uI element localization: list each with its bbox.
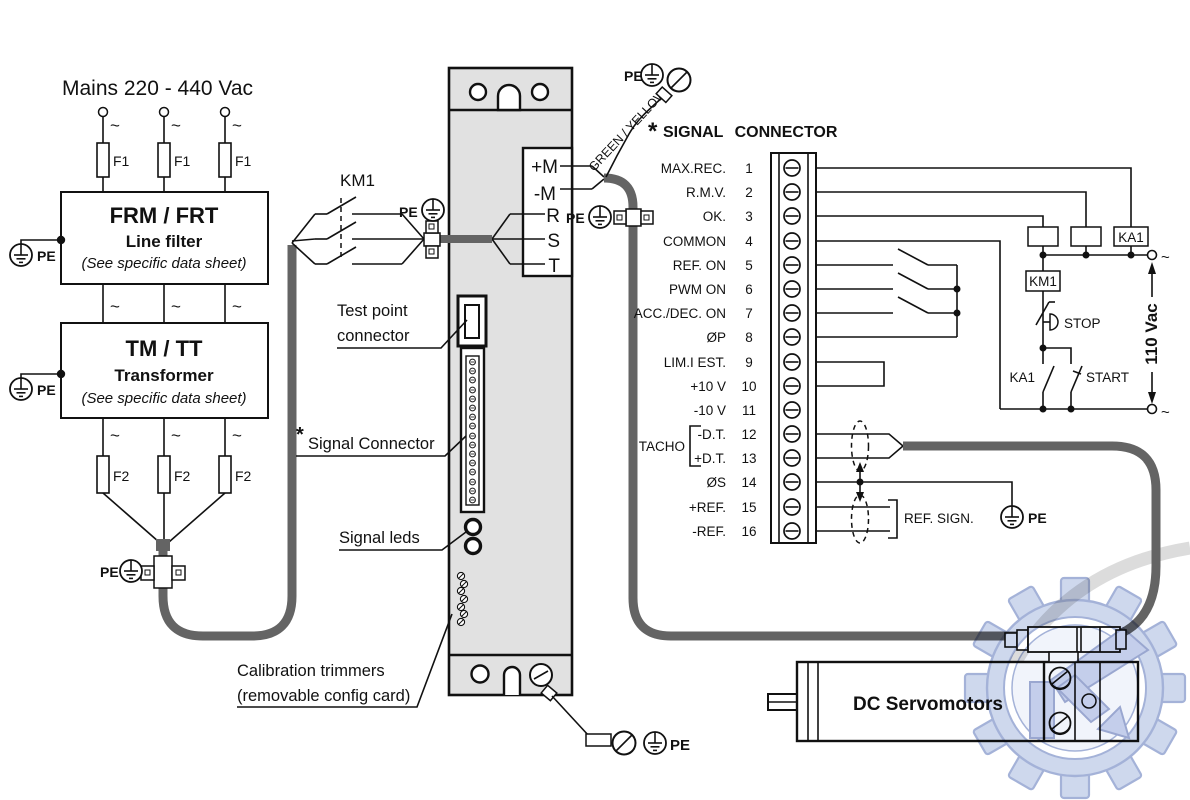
svg-text:8: 8 — [745, 330, 753, 345]
supply-terminal-bottom — [1148, 405, 1157, 414]
svg-text:12: 12 — [741, 427, 756, 442]
cable-clamp-pe-armature: PE — [566, 206, 653, 228]
svg-text:ØS: ØS — [706, 475, 726, 490]
filter-to-transformer-lines: ~ ~ ~ — [103, 284, 242, 323]
ref-sign-bracket: REF. SIGN. — [888, 500, 974, 538]
control-circuit: KA1 ~ KM1 STOP KA1 — [1000, 227, 1170, 421]
pe-label: PE — [624, 68, 643, 84]
svg-text:11: 11 — [742, 403, 756, 418]
terminal-r: R — [546, 206, 560, 227]
ac-symbol: ~ — [171, 116, 181, 135]
line-filter-pe: PE — [10, 236, 65, 266]
pe-label: PE — [1028, 510, 1047, 526]
tacho-bracket: TACHO — [639, 426, 701, 466]
drive-bottom-pe: PE — [552, 696, 690, 755]
wire-plus-dt — [816, 446, 903, 458]
mounting-slot — [504, 667, 520, 695]
svg-text:1: 1 — [745, 161, 753, 176]
svg-text:Signal leds: Signal leds — [339, 529, 420, 547]
svg-text:MAX.REC.: MAX.REC. — [661, 161, 726, 176]
svg-text:(removable config card): (removable config card) — [237, 687, 410, 705]
svg-text:R.M.V.: R.M.V. — [686, 185, 726, 200]
pe-label: PE — [100, 564, 119, 580]
transformer-subtitle: Transformer — [114, 366, 214, 385]
terminal-minus-m: -M — [534, 184, 556, 205]
ac-symbol: ~ — [110, 116, 120, 135]
svg-text:-10 V: -10 V — [694, 403, 726, 418]
transformer-pe: PE — [10, 370, 65, 400]
secondary-section: ~ ~ ~ F2 F2 F2 — [97, 418, 252, 551]
callout-signal-connector: * Signal Connector — [296, 424, 466, 456]
drive-callouts: Test point connector * Signal Connector … — [237, 302, 467, 707]
fuse-f1-label: F1 — [174, 153, 191, 169]
svg-text:ØP: ØP — [706, 330, 726, 345]
start-button: START — [1043, 348, 1129, 409]
cable-clamp-pe-left: PE — [100, 556, 185, 588]
wire-pwm-on — [816, 273, 957, 289]
svg-text:Calibration trimmers: Calibration trimmers — [237, 662, 385, 680]
svg-text:13: 13 — [741, 451, 756, 466]
svg-text:STOP: STOP — [1064, 316, 1101, 331]
svg-text:Signal Connector: Signal Connector — [308, 435, 435, 453]
svg-text:2: 2 — [745, 185, 753, 200]
svg-text:PWM ON: PWM ON — [669, 282, 726, 297]
fuse-f2-label: F2 — [113, 468, 130, 484]
svg-text:KM1: KM1 — [1029, 274, 1057, 289]
fuse-f2-label: F2 — [235, 468, 252, 484]
supply-voltage-dimension: 110 Vac — [1142, 262, 1161, 404]
wire-minus-dt — [816, 434, 903, 446]
wire-acc-dec-on — [816, 297, 957, 313]
svg-text:COMMON: COMMON — [663, 234, 726, 249]
wire-ref-on — [816, 249, 957, 265]
terminal-t: T — [548, 256, 560, 277]
svg-text:OK.: OK. — [703, 209, 726, 224]
svg-text:KA1: KA1 — [1118, 230, 1144, 245]
ac-symbol: ~ — [232, 116, 242, 135]
svg-text:16: 16 — [741, 524, 756, 539]
ac-symbol: ~ — [171, 297, 181, 316]
relay-coil-ka1: KA1 — [1114, 227, 1148, 246]
pe-label: PE — [37, 382, 56, 398]
svg-text:ACC./DEC. ON: ACC./DEC. ON — [634, 306, 726, 321]
stop-button: STOP — [1036, 291, 1101, 348]
pe-label: PE — [399, 204, 418, 220]
keyhole-slot — [498, 85, 520, 110]
svg-text:Test point: Test point — [337, 302, 408, 320]
ac-symbol: ~ — [232, 297, 242, 316]
wire-ok — [816, 216, 1043, 227]
terminal-plus-m: +M — [531, 157, 558, 178]
signal-connector-section: * SIGNAL CONNECTOR MAX.REC.1 R.M.V.2 OK.… — [634, 118, 838, 543]
wiring-diagram-page: Mains 220 - 440 Vac ~ ~ ~ F1 F1 F1 FRM / — [0, 0, 1190, 800]
svg-text:6: 6 — [745, 282, 753, 297]
km1-pole-1 — [315, 197, 402, 214]
mounting-hole — [532, 84, 548, 100]
svg-text:REF. ON: REF. ON — [673, 258, 726, 273]
jumper-limi-10v — [816, 362, 884, 386]
svg-text:9: 9 — [745, 355, 753, 370]
signal-connector-heading: SIGNAL CONNECTOR — [663, 124, 838, 141]
callout-signal-leds: Signal leds — [339, 529, 466, 550]
km1-contactor-label: KM1 — [340, 171, 375, 190]
transformer-title: TM / TT — [126, 336, 204, 361]
callout-test-point: Test point connector — [337, 302, 467, 348]
svg-text:START: START — [1086, 370, 1129, 385]
relay-coil-1 — [1028, 227, 1058, 246]
km1-pole-2 — [315, 222, 402, 239]
svg-text:-D.T.: -D.T. — [698, 427, 727, 442]
svg-text:4: 4 — [745, 234, 753, 249]
svg-text:connector: connector — [337, 327, 410, 345]
svg-text:15: 15 — [741, 500, 756, 515]
wire-max-rec — [816, 168, 1131, 227]
signal-terminal-block — [771, 153, 816, 543]
svg-text:+REF.: +REF. — [689, 500, 726, 515]
svg-text:3: 3 — [745, 209, 753, 224]
watermark-gear-logo — [965, 578, 1185, 798]
ref-sign-label: REF. SIGN. — [904, 511, 974, 526]
ac-symbol: ~ — [171, 426, 181, 445]
servo-drive-wiring-diagram: Mains 220 - 440 Vac ~ ~ ~ F1 F1 F1 FRM / — [0, 0, 1190, 800]
mains-section: Mains 220 - 440 Vac ~ ~ ~ F1 F1 F1 — [62, 77, 253, 192]
heading-asterisk: * — [648, 118, 658, 145]
signal-wiring: PE REF. SIGN. — [816, 168, 1156, 635]
fuse-f1-label: F1 — [235, 153, 252, 169]
ac-symbol: ~ — [1161, 249, 1170, 266]
wire-rmv — [816, 192, 1086, 227]
callout-calibration: Calibration trimmers (removable config c… — [237, 614, 452, 707]
km1-pole-3 — [315, 247, 402, 264]
drive-signal-connector-strip — [461, 348, 484, 512]
terminal-s: S — [547, 231, 560, 252]
svg-text:14: 14 — [741, 475, 757, 490]
transformer-box: TM / TT Transformer (See specific data s… — [10, 323, 268, 418]
svg-text:-REF.: -REF. — [692, 524, 726, 539]
pe-label: PE — [566, 210, 585, 226]
km1-coil: KM1 — [1026, 255, 1060, 291]
tacho-label: TACHO — [639, 439, 685, 454]
relay-coil-2 — [1071, 227, 1101, 246]
mounting-hole — [472, 666, 489, 683]
supply-voltage-label: 110 Vac — [1142, 303, 1161, 364]
svg-text:KA1: KA1 — [1009, 370, 1035, 385]
ka1-contact: KA1 — [1009, 348, 1054, 409]
line-filter-subtitle: Line filter — [126, 232, 203, 251]
wire-common — [816, 241, 1000, 409]
line-filter-title: FRM / FRT — [110, 203, 219, 228]
fuse-f2-label: F2 — [174, 468, 191, 484]
cable-clamp-pe-mid: PE — [399, 199, 444, 258]
test-point-connector — [458, 296, 486, 346]
pe-label: PE — [670, 737, 690, 754]
drive-module: +M -M R S T — [449, 68, 572, 701]
svg-text:+D.T.: +D.T. — [694, 451, 726, 466]
transformer-note: (See specific data sheet) — [81, 390, 246, 407]
mains-title: Mains 220 - 440 Vac — [62, 77, 253, 100]
pe-label: PE — [37, 248, 56, 264]
supply-terminal-top — [1148, 251, 1157, 260]
svg-text:LIM.I EST.: LIM.I EST. — [664, 355, 726, 370]
line-filter-note: (See specific data sheet) — [81, 255, 246, 272]
svg-text:10: 10 — [741, 379, 756, 394]
line-filter-box: FRM / FRT Line filter (See specific data… — [10, 192, 268, 284]
fuses-f1: F1 F1 F1 — [97, 143, 252, 177]
svg-text:+10 V: +10 V — [690, 379, 726, 394]
svg-text:5: 5 — [745, 258, 753, 273]
svg-text:*: * — [296, 424, 304, 446]
ac-symbol: ~ — [1161, 404, 1170, 421]
svg-text:7: 7 — [745, 306, 753, 321]
ac-symbol: ~ — [232, 426, 242, 445]
ac-symbol: ~ — [110, 426, 120, 445]
mounting-hole — [470, 84, 486, 100]
fuse-f1-label: F1 — [113, 153, 130, 169]
ac-symbol: ~ — [110, 297, 120, 316]
